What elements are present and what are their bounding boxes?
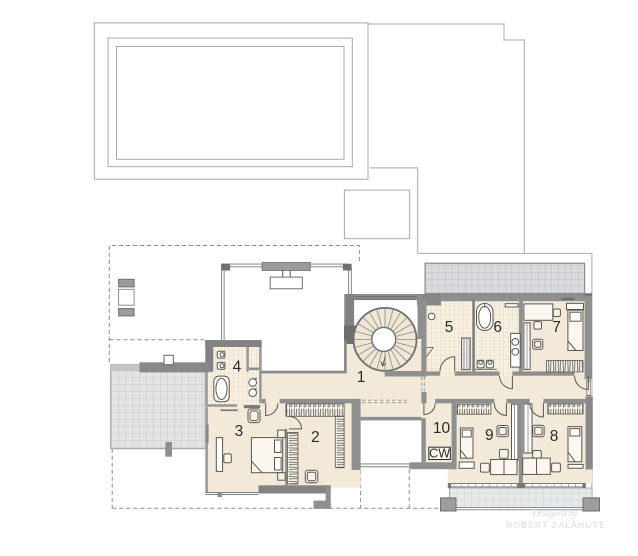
svg-text:9: 9: [485, 427, 494, 444]
svg-text:ROBERT ZALAHUTE: ROBERT ZALAHUTE: [506, 520, 606, 530]
svg-text:7: 7: [552, 319, 561, 336]
svg-text:3: 3: [235, 423, 244, 440]
svg-text:10: 10: [433, 420, 451, 437]
svg-text:4: 4: [233, 359, 242, 376]
svg-text:Designed by: Designed by: [532, 508, 578, 518]
svg-text:5: 5: [445, 319, 454, 336]
svg-text:CW: CW: [429, 447, 450, 461]
svg-text:6: 6: [493, 319, 502, 336]
svg-text:8: 8: [550, 428, 559, 445]
svg-text:2: 2: [311, 429, 320, 446]
svg-text:1: 1: [357, 369, 366, 386]
